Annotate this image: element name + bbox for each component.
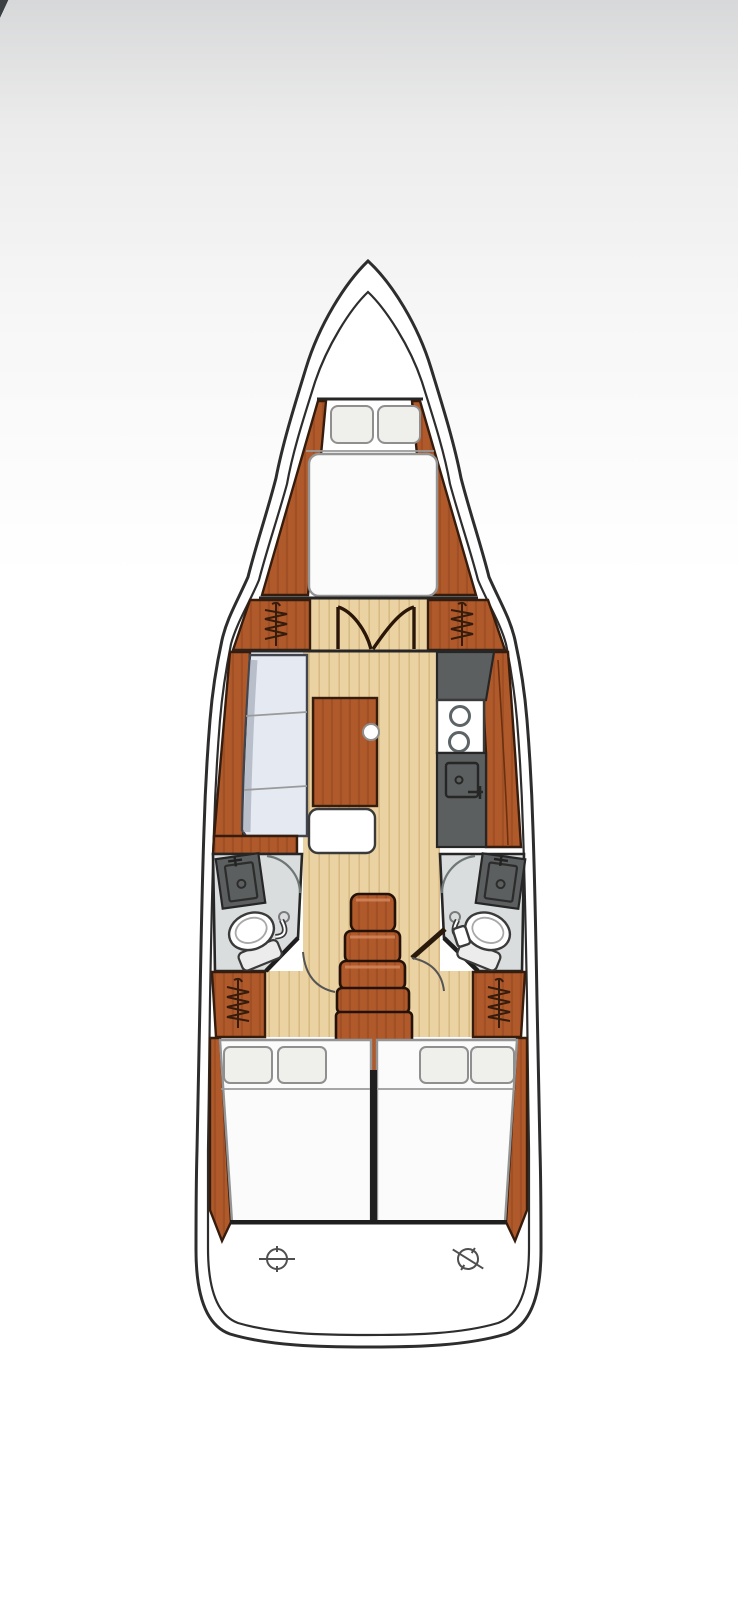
aft-pillow (278, 1047, 326, 1083)
cabin-divider-bulkhead (370, 1070, 377, 1224)
aft-pillow (471, 1047, 514, 1083)
galley-counter-aft (437, 652, 494, 700)
page: { "title": "Sailboat interior layout pla… (0, 0, 738, 1600)
table-top (313, 698, 377, 806)
head-port-basin (216, 853, 266, 908)
stove (437, 700, 484, 753)
galley (437, 652, 521, 847)
table-cupholder (363, 724, 379, 740)
aft-cabins (210, 1038, 527, 1241)
vberth-pillow-left (331, 406, 373, 443)
step-4 (337, 988, 409, 1013)
aft-pillow (224, 1047, 272, 1083)
aft-berth-footline (230, 1220, 507, 1225)
burner-icon (450, 733, 469, 752)
aft-pillow (420, 1047, 468, 1083)
vberth-mattress (309, 454, 437, 596)
boat-floorplan (0, 0, 738, 1600)
vberth-pillow-right (378, 406, 420, 443)
saloon-table (313, 698, 379, 806)
galley-sink-unit (437, 753, 486, 847)
settee-end-step (213, 836, 297, 854)
head-starboard-basin (476, 853, 526, 908)
settee-end-seat (309, 809, 375, 853)
burner-icon (451, 707, 470, 726)
step-3 (340, 961, 405, 989)
